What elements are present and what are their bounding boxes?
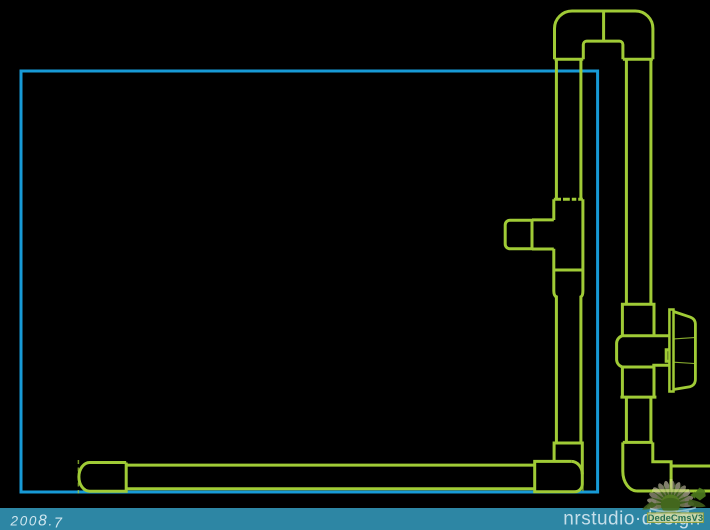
svg-text:2008.7: 2008.7	[10, 512, 64, 530]
svg-text:DedeCmsV3: DedeCmsV3	[648, 513, 703, 524]
